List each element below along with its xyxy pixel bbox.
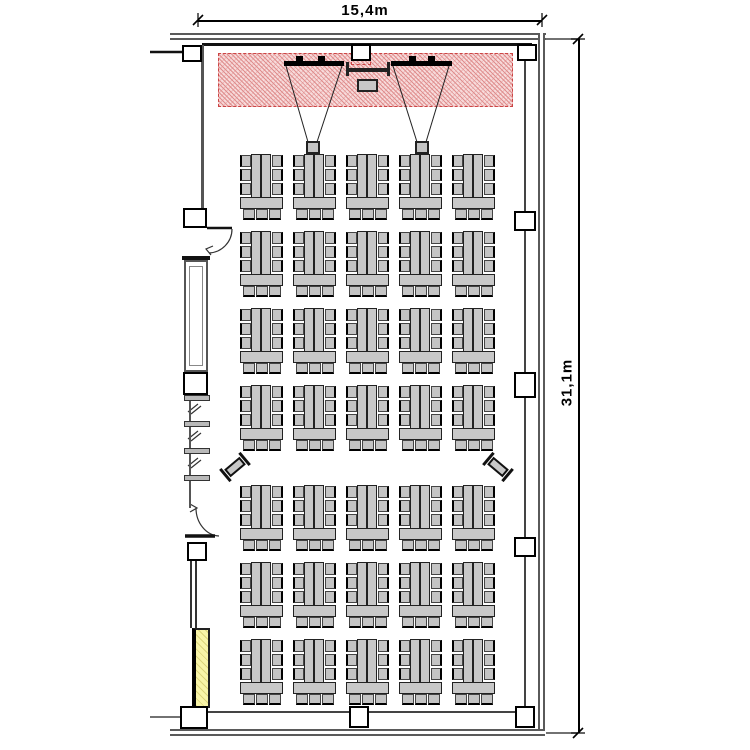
chair [402,694,414,705]
chair [399,640,410,652]
chair [484,400,495,412]
chair [378,232,389,244]
chair [431,591,442,603]
chair [431,563,442,575]
chair [399,514,410,526]
chair [325,183,336,195]
chair [399,323,410,335]
chair [325,246,336,258]
chair [346,668,357,680]
table [410,154,420,198]
chair [349,617,361,628]
chair [468,363,480,374]
screen-mount-icon [428,56,435,61]
table [304,385,314,429]
pillar [183,372,208,395]
pillar [514,372,536,398]
chair [325,640,336,652]
table [452,605,495,617]
chair [309,286,321,297]
chair [452,323,463,335]
projection-screen-left [284,61,344,66]
table [410,385,420,429]
chair [322,540,334,551]
chair [378,591,389,603]
chair [272,260,283,272]
chair [293,577,304,589]
table [261,154,271,198]
chair [272,155,283,167]
chair [296,694,308,705]
table [420,385,430,429]
chair [415,286,427,297]
chair [431,309,442,321]
chair [375,209,387,220]
chair [293,246,304,258]
chair [415,694,427,705]
chair [452,591,463,603]
chair [428,440,440,451]
chair [452,246,463,258]
table-group [399,154,442,220]
chair [272,591,283,603]
table-group [240,385,283,451]
chair [346,246,357,258]
table [410,308,420,352]
table-group [293,385,336,451]
chair [484,514,495,526]
table [473,154,483,198]
chair [322,694,334,705]
table [261,308,271,352]
pillar [514,211,536,231]
chair [293,169,304,181]
table-group [293,308,336,374]
chair [293,640,304,652]
chair [378,169,389,181]
chair [240,654,251,666]
table [367,231,377,275]
table [367,154,377,198]
chair [452,232,463,244]
chair [378,323,389,335]
wall-left-upper [201,45,204,208]
chair [484,183,495,195]
table [346,197,389,209]
table [240,605,283,617]
chair [452,337,463,349]
chair [431,414,442,426]
table [452,351,495,363]
table-group [452,154,495,220]
table [367,485,377,529]
chair [484,414,495,426]
chair [272,400,283,412]
chair [269,540,281,551]
screen-mount-icon [409,56,416,61]
table [314,639,324,683]
chair [431,337,442,349]
chair [346,337,357,349]
chair [322,440,334,451]
chair [293,232,304,244]
chair [452,386,463,398]
chair [346,323,357,335]
chair [293,591,304,603]
chair [243,209,255,220]
chair [468,540,480,551]
chair [293,514,304,526]
table-group [399,562,442,628]
chair [375,540,387,551]
table [399,528,442,540]
table [357,154,367,198]
table [399,682,442,694]
chair [296,286,308,297]
projection-cone-line [393,66,417,142]
table-group [240,154,283,220]
lectern [357,79,378,92]
chair [378,414,389,426]
chair [375,617,387,628]
table [293,682,336,694]
chair [468,286,480,297]
pillar [351,44,371,61]
chair [431,155,442,167]
table-group [240,308,283,374]
table [473,308,483,352]
chair [468,440,480,451]
table [304,231,314,275]
chair [272,577,283,589]
table-group [452,485,495,551]
chair [346,414,357,426]
chair [452,668,463,680]
table [346,274,389,286]
chair [415,363,427,374]
chair [269,617,281,628]
radiator-segment [184,448,210,454]
chair [399,400,410,412]
chair [240,591,251,603]
chair [296,540,308,551]
chair [428,209,440,220]
table [304,639,314,683]
chair [402,209,414,220]
chair [484,309,495,321]
table-group [346,562,389,628]
chair [240,514,251,526]
table [346,528,389,540]
projection-screen-right [391,61,452,66]
table [304,154,314,198]
chair [325,577,336,589]
table [463,154,473,198]
chair [256,440,268,451]
table-group [399,385,442,451]
chair [378,486,389,498]
dimension-label-width: 15,4m [320,2,410,19]
chair [431,486,442,498]
chair [431,246,442,258]
table-group [346,485,389,551]
chair [484,577,495,589]
chair [378,309,389,321]
chair [296,363,308,374]
chair [240,323,251,335]
chair [431,386,442,398]
chair [431,500,442,512]
chair [346,386,357,398]
table-group [293,485,336,551]
chair [272,309,283,321]
chair [293,337,304,349]
table [261,562,271,606]
chair [399,500,410,512]
chair [293,500,304,512]
table [240,528,283,540]
whiteboard [348,68,388,72]
chair [309,694,321,705]
table [463,385,473,429]
table [293,605,336,617]
chair [349,209,361,220]
chair [484,337,495,349]
pillar [349,706,369,728]
chair [240,414,251,426]
chair [293,414,304,426]
chair [272,169,283,181]
whiteboard-end [346,62,349,76]
chair [256,617,268,628]
table [314,385,324,429]
chair [269,694,281,705]
screen-mount-icon [318,56,325,61]
chair [428,286,440,297]
chair [346,155,357,167]
chair [375,694,387,705]
chair [378,183,389,195]
window-glass [189,266,203,366]
table [346,351,389,363]
table [420,562,430,606]
table [304,308,314,352]
table [251,562,261,606]
chair [293,654,304,666]
chair [452,563,463,575]
chair [452,654,463,666]
table [261,385,271,429]
table-group [346,385,389,451]
chair [431,183,442,195]
chair [452,514,463,526]
chair [455,617,467,628]
chair [293,323,304,335]
chair [243,694,255,705]
chair [346,640,357,652]
chair [293,183,304,195]
chair [362,617,374,628]
chair [399,577,410,589]
chair [240,260,251,272]
table [251,385,261,429]
chair [484,640,495,652]
table [304,485,314,529]
chair [452,260,463,272]
table [410,562,420,606]
chair [399,309,410,321]
table [357,231,367,275]
pillar [517,44,537,61]
table [357,639,367,683]
chair [431,232,442,244]
chair [431,654,442,666]
chair [325,155,336,167]
table [420,154,430,198]
table [357,485,367,529]
chair [240,232,251,244]
table [473,385,483,429]
table [251,154,261,198]
chair [256,694,268,705]
chair [309,540,321,551]
chair [272,337,283,349]
chair [346,563,357,575]
chair [325,500,336,512]
chair [484,486,495,498]
table [251,639,261,683]
table [314,485,324,529]
chair [378,400,389,412]
door-swing-arc [209,229,232,253]
chair [431,400,442,412]
table [399,274,442,286]
chair [399,668,410,680]
table [293,528,336,540]
table-group [346,639,389,705]
chair [415,209,427,220]
chair [240,486,251,498]
table-group [240,485,283,551]
table [314,231,324,275]
chair [399,591,410,603]
chair [269,209,281,220]
chair [481,286,493,297]
door-swing-arc [196,508,219,536]
table-group [452,562,495,628]
chair [349,440,361,451]
chair [243,617,255,628]
table [399,197,442,209]
table [452,197,495,209]
chair [272,414,283,426]
table [240,682,283,694]
table [463,562,473,606]
chair [431,169,442,181]
chair [455,440,467,451]
chair [243,440,255,451]
chair [293,668,304,680]
chair [346,514,357,526]
chair [378,654,389,666]
chair [415,617,427,628]
chair [272,668,283,680]
table-group [452,231,495,297]
pillar [515,706,535,728]
chair [293,309,304,321]
chair [346,500,357,512]
projector-right [415,141,429,154]
dimension-line-height [578,39,580,733]
table [367,308,377,352]
chair [293,155,304,167]
highlight-board [192,628,210,708]
radiator-segment [184,395,210,401]
chair [378,246,389,258]
chair [240,577,251,589]
chair [362,363,374,374]
screen-mount-icon [296,56,303,61]
chair [293,563,304,575]
chair [399,654,410,666]
chair [349,694,361,705]
chair [484,155,495,167]
chair [415,440,427,451]
chair [243,363,255,374]
table-group [346,308,389,374]
table [367,639,377,683]
chair [481,617,493,628]
projection-cone-line [317,66,342,142]
table [251,308,261,352]
chair [240,155,251,167]
chair [402,363,414,374]
chair [325,386,336,398]
chair [240,183,251,195]
table [346,428,389,440]
chair [378,155,389,167]
chair [452,169,463,181]
chair [346,309,357,321]
chair [481,209,493,220]
chair [293,386,304,398]
dimension-line-width [198,20,542,22]
pillar [180,706,208,729]
chair [431,668,442,680]
table [420,485,430,529]
chair [362,209,374,220]
table-group [452,385,495,451]
chair [399,155,410,167]
chair [399,169,410,181]
chair [484,323,495,335]
table [452,528,495,540]
projection-cone-line [426,66,449,142]
chair [349,540,361,551]
chair [296,440,308,451]
table [399,605,442,617]
chair [256,209,268,220]
table [410,639,420,683]
chair [272,183,283,195]
chair [346,577,357,589]
table [410,231,420,275]
chair [240,386,251,398]
table-group [293,231,336,297]
projector-left [306,141,320,154]
chair [484,260,495,272]
dimension-label-height: 31,1m [559,347,576,419]
